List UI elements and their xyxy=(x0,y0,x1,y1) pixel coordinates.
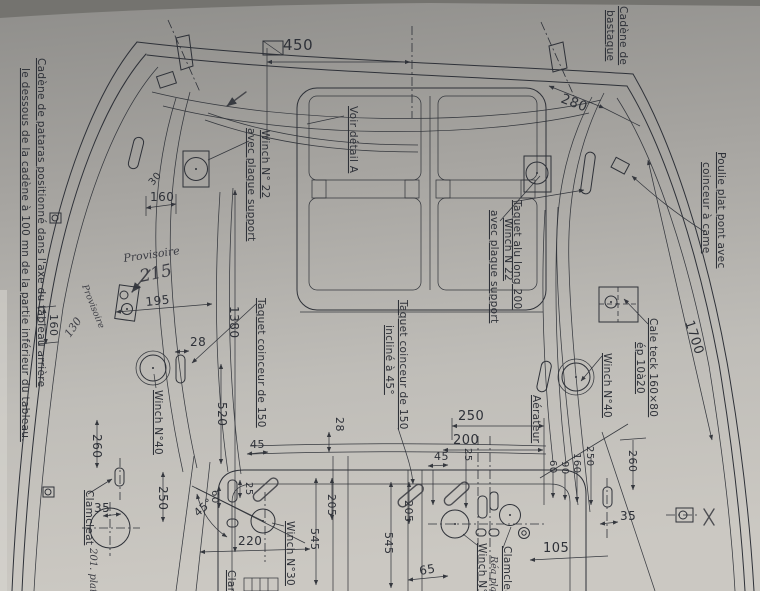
label-winch22-right-2: avec plaque support xyxy=(488,210,500,323)
label-taquet-coinceur-center-1: Taquet coinceur de 150 xyxy=(397,299,409,430)
label-bastaque-2: bastaque xyxy=(604,10,616,61)
dim-160-left: 160 xyxy=(47,314,60,337)
dim-205-b: 205 xyxy=(402,500,415,523)
label-winch30: Winch N°30 xyxy=(284,521,296,586)
paper-background xyxy=(0,0,760,591)
label-winch22-left-2: avec plaque support xyxy=(245,128,257,241)
dim-90-right: 90 xyxy=(559,461,570,475)
dim-450: 450 xyxy=(283,36,313,54)
label-cale-1: Cale teck 160×80 xyxy=(647,318,659,417)
label-taquet-coinceur-center-2: incliné à 45° xyxy=(383,325,395,395)
deck-plan-screenshot: Cadène de pataras positionné dans l'axe … xyxy=(0,0,760,591)
dim-45-small: 45 xyxy=(250,438,265,451)
label-cale-2: ép 10à20 xyxy=(634,342,646,394)
label-voir-detail: Voir détail A xyxy=(347,106,359,174)
label-taquet-alu: Taquet alu long 200 xyxy=(511,199,523,309)
dim-195: 195 xyxy=(145,293,171,309)
margin-note-line1: Cadène de pataras positionné dans l'axe … xyxy=(35,58,47,387)
dim-60-right: 60 xyxy=(547,460,558,474)
paper-sheet xyxy=(0,3,760,591)
dim-545-b: 545 xyxy=(382,532,395,555)
handwritten-rea: Réa plat xyxy=(488,555,499,591)
dim-1380: 1380 xyxy=(227,306,241,339)
dim-25-center: 25 xyxy=(462,448,473,462)
label-winch22-left-1: Winch N° 22 xyxy=(259,130,271,199)
label-clamcleat-left: Clamcleat xyxy=(83,490,95,545)
dim-250-left: 250 xyxy=(156,486,170,510)
dim-260-right: 260 xyxy=(626,450,639,473)
label-clamcleat-bottom-right: Clamcleat xyxy=(501,546,513,591)
deck-plan-drawing: Cadène de pataras positionné dans l'axe … xyxy=(0,0,760,591)
dim-220: 220 xyxy=(238,534,262,548)
dim-45-center: 45 xyxy=(434,450,449,463)
dim-520: 520 xyxy=(215,402,229,426)
dim-205-a: 205 xyxy=(325,494,338,517)
dim-28-center: 28 xyxy=(333,417,346,432)
paper-edge-highlight xyxy=(0,290,7,591)
dim-105: 105 xyxy=(543,541,569,556)
dim-65: 65 xyxy=(418,561,436,578)
dim-35-right: 35 xyxy=(620,509,636,523)
dim-545-a: 545 xyxy=(308,528,321,551)
label-winch-bottom-right: Winch N° xyxy=(476,543,488,591)
label-poulie-1: Poulie plat pont avec xyxy=(715,152,727,269)
dim-200-center: 200 xyxy=(453,433,479,448)
dim-28-left: 28 xyxy=(190,335,206,349)
handwritten-clamcleat-suffix: 201. plat xyxy=(87,547,98,591)
label-clamcleat-bottom-left: Clam xyxy=(225,570,237,591)
dim-260-left: 260 xyxy=(90,434,104,458)
label-winch40-right: Winch N°40 xyxy=(601,353,613,418)
dim-250-center: 250 xyxy=(458,409,484,424)
label-winch40-left: Winch N°40 xyxy=(152,390,164,455)
dim-25-small-left: 25 xyxy=(243,482,254,496)
label-bastaque-1: Cadène de xyxy=(617,6,629,65)
label-taquet-coinceur-left: Taquet coinceur de 150 xyxy=(255,297,267,428)
dim-160-top: 160 xyxy=(150,190,174,204)
dim-160-right: 160 xyxy=(571,453,582,474)
label-aerateur: Aérateur xyxy=(530,395,542,444)
label-poulie-2: coinceur à came xyxy=(700,162,712,253)
dim-35-left: 35 xyxy=(94,501,110,515)
dim-250-right: 250 xyxy=(584,446,595,467)
margin-note-line2: le dessous de la cadène à 100 mn de la p… xyxy=(19,68,31,442)
